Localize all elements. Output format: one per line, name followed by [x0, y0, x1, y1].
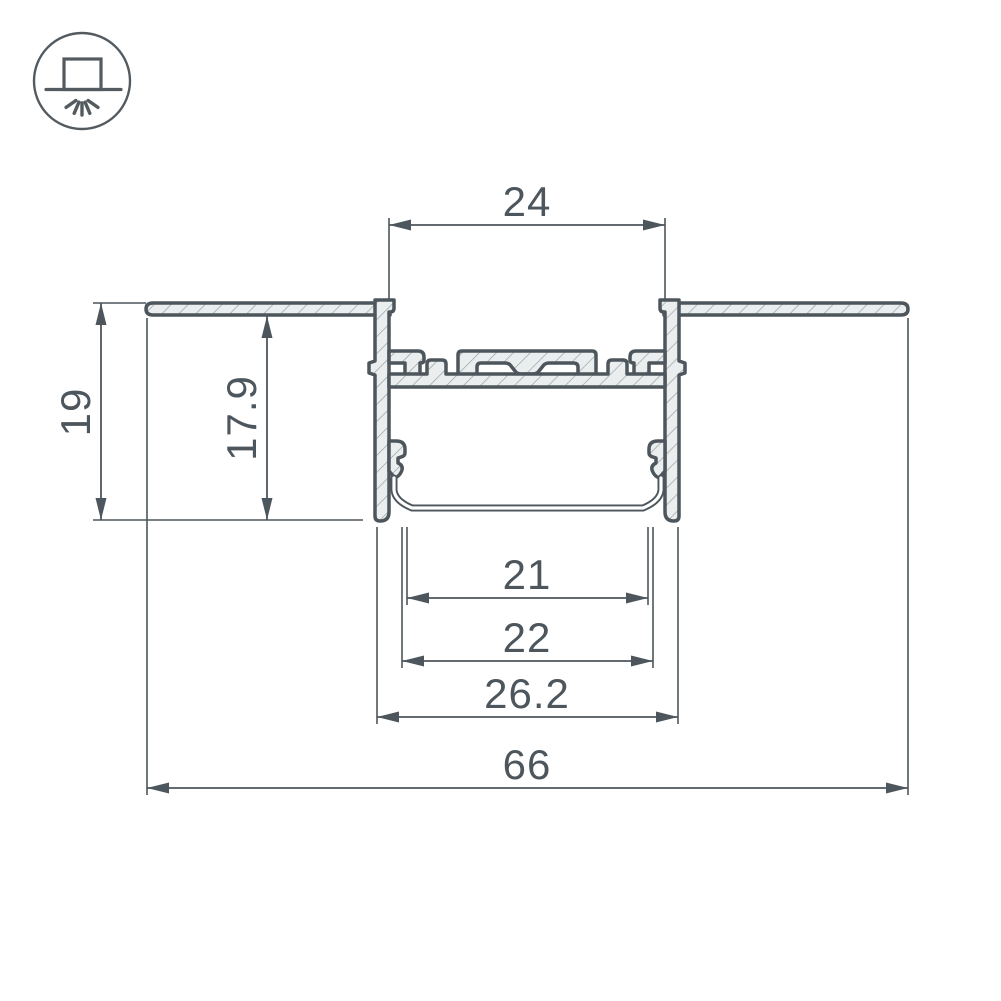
dim-label-body-width: 26.2 [484, 670, 570, 717]
dim-label-overall-width: 66 [503, 741, 552, 788]
profile-cross-section-drawing: 24 19 17.9 21 22 26.2 66 [0, 0, 1001, 1001]
dim-label-height: 19 [52, 388, 99, 437]
dim-label-diffuser-width: 22 [503, 614, 552, 661]
right-hook [649, 441, 665, 478]
icon-light-rays [66, 101, 98, 116]
right-flange [664, 303, 908, 315]
dim-label-inner-height: 17.9 [218, 375, 265, 461]
diffuser [394, 478, 661, 508]
left-flange [146, 303, 390, 315]
icon-fixture-box [64, 59, 101, 90]
left-wall [369, 300, 394, 521]
recessed-mount-icon [34, 33, 130, 129]
technical-drawing-page: 24 19 17.9 21 22 26.2 66 [0, 0, 1001, 1001]
dim-label-opening: 24 [503, 178, 552, 225]
dimension-labels: 24 19 17.9 21 22 26.2 66 [52, 178, 570, 788]
dim-label-inner-width: 21 [503, 551, 552, 598]
left-hook [389, 441, 405, 478]
